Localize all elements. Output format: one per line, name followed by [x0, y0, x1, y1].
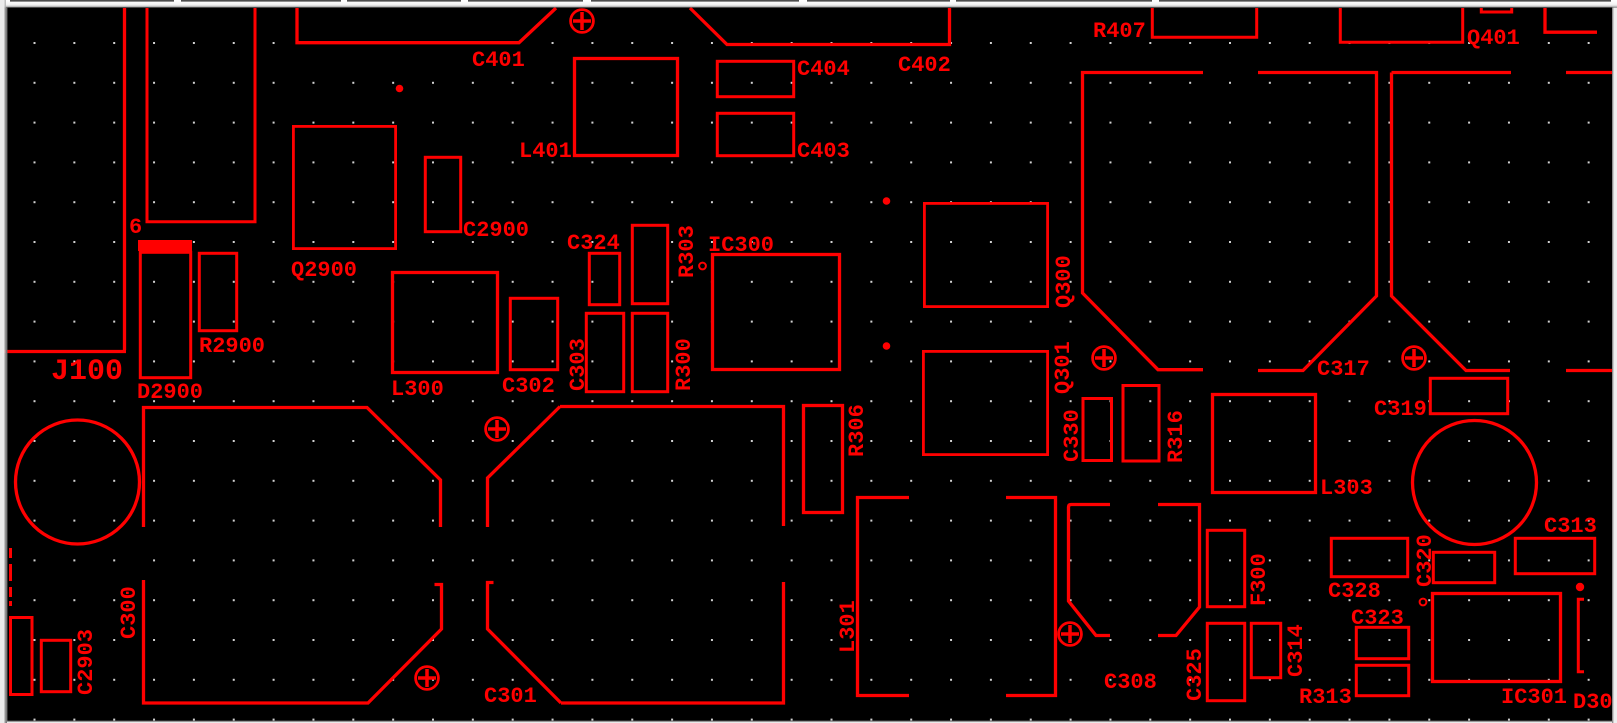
svg-text:C303: C303	[566, 338, 591, 391]
svg-text:L401: L401	[519, 139, 572, 164]
svg-text:C323: C323	[1351, 606, 1404, 631]
svg-text:C300: C300	[117, 586, 142, 639]
svg-text:C301: C301	[484, 684, 537, 709]
svg-text:R316: R316	[1164, 410, 1189, 463]
svg-text:C313: C313	[1544, 514, 1597, 539]
svg-text:Q301: Q301	[1051, 341, 1076, 394]
svg-text:C302: C302	[502, 374, 555, 399]
svg-text:R300: R300	[672, 338, 697, 391]
svg-text:L303: L303	[1320, 476, 1373, 501]
svg-text:L300: L300	[391, 377, 444, 402]
svg-text:Q401: Q401	[1467, 26, 1520, 51]
svg-text:R306: R306	[845, 404, 870, 457]
svg-text:6: 6	[129, 215, 142, 240]
svg-text:F300: F300	[1247, 553, 1272, 606]
svg-text:C319: C319	[1374, 397, 1427, 422]
svg-text:Q300: Q300	[1052, 255, 1077, 308]
svg-text:C401: C401	[472, 48, 525, 73]
svg-text:C402: C402	[898, 53, 951, 78]
svg-text:R303: R303	[675, 225, 700, 278]
svg-text:C330: C330	[1060, 409, 1085, 462]
svg-text:C2900: C2900	[463, 218, 529, 243]
svg-text:C317: C317	[1317, 357, 1370, 382]
svg-text:C314: C314	[1284, 624, 1309, 677]
svg-text:C320: C320	[1413, 534, 1438, 587]
svg-text:C2903: C2903	[74, 629, 99, 695]
svg-text:C404: C404	[797, 57, 850, 82]
svg-text:C403: C403	[797, 139, 850, 164]
svg-text:C328: C328	[1328, 579, 1381, 604]
svg-text:J100: J100	[51, 355, 123, 389]
svg-text:IC300: IC300	[708, 233, 774, 258]
svg-text:C308: C308	[1104, 670, 1157, 695]
svg-text:D30: D30	[1573, 690, 1613, 715]
svg-text:R313: R313	[1299, 685, 1352, 710]
svg-text:C325: C325	[1183, 648, 1208, 701]
svg-text:IC301: IC301	[1501, 685, 1567, 710]
svg-text:R2900: R2900	[199, 334, 265, 359]
svg-text:C324: C324	[567, 231, 620, 256]
svg-text:D2900: D2900	[137, 380, 203, 405]
svg-text:R407: R407	[1093, 19, 1146, 44]
svg-text:L301: L301	[836, 600, 861, 653]
svg-text:Q2900: Q2900	[291, 258, 357, 283]
